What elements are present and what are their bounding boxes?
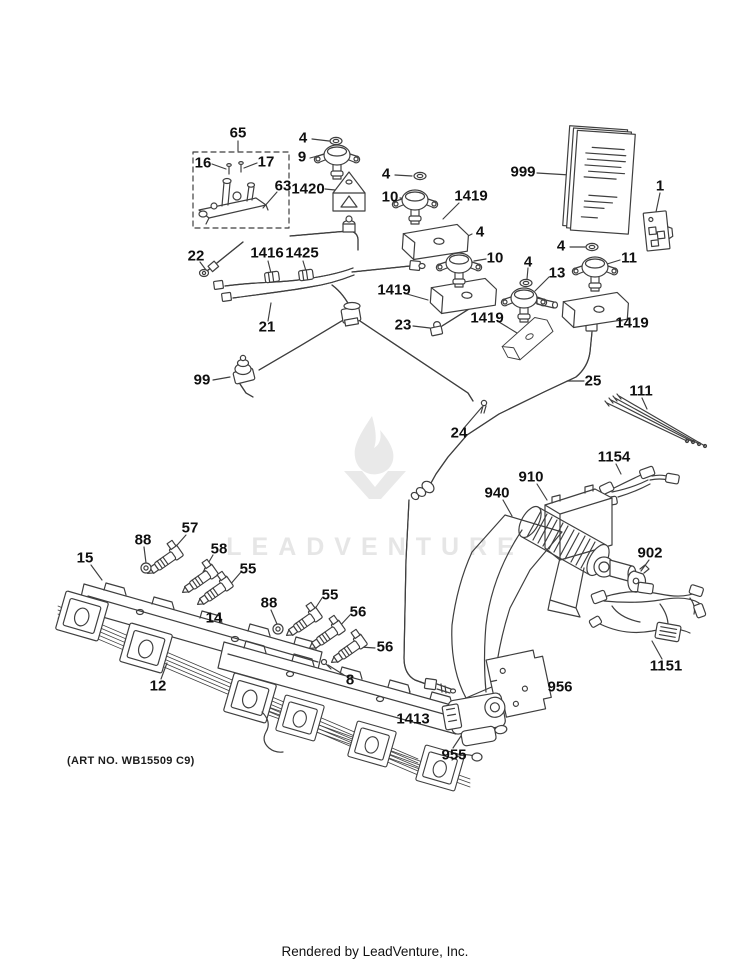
part-999-manual [562, 126, 635, 234]
part-111-rods [605, 394, 707, 448]
leadventure-logo-watermark [344, 416, 406, 499]
footer-credit-text: Rendered by LeadVenture, Inc. [0, 944, 750, 959]
part-1151-harness [589, 582, 706, 642]
part-1-bracket [643, 210, 674, 251]
parts-diagram-page: LEADVENTURE [0, 0, 750, 971]
diagram-art [0, 0, 750, 971]
part-955-lock-valve [441, 692, 510, 749]
part-910-blower [514, 485, 640, 617]
part-99-regulator [233, 355, 255, 384]
art-number-text: (ART NO. WB15509 C9) [67, 755, 195, 767]
part-16-17-screws [227, 162, 243, 174]
